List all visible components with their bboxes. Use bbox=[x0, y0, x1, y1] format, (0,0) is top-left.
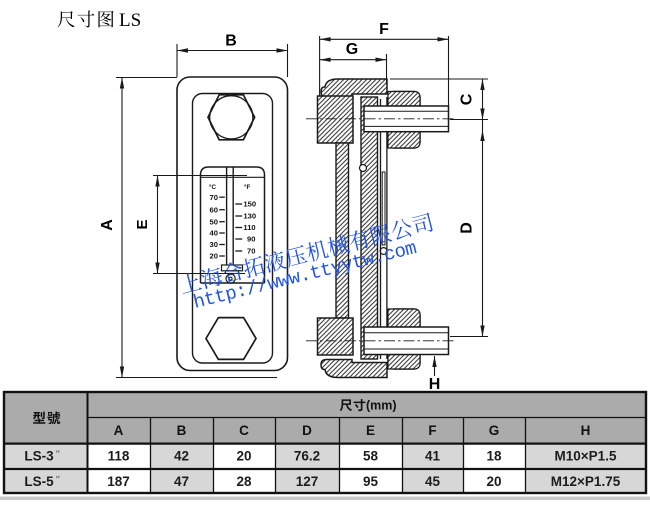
svg-text:°C: °C bbox=[209, 183, 217, 191]
svg-text:A: A bbox=[99, 219, 116, 231]
svg-text:F: F bbox=[428, 423, 436, 438]
svg-text:D: D bbox=[459, 222, 476, 234]
svg-text:42: 42 bbox=[174, 449, 189, 464]
svg-text:E: E bbox=[134, 219, 151, 229]
svg-text:150: 150 bbox=[243, 200, 256, 209]
svg-text:M10×P1.5: M10×P1.5 bbox=[555, 449, 617, 464]
svg-text:47: 47 bbox=[174, 474, 189, 489]
svg-text:G: G bbox=[346, 41, 358, 58]
svg-text:18: 18 bbox=[486, 449, 502, 464]
svg-text:A: A bbox=[114, 423, 124, 438]
svg-text:70: 70 bbox=[247, 247, 255, 256]
svg-text:(mm): (mm) bbox=[366, 399, 397, 413]
svg-text:40: 40 bbox=[210, 229, 218, 238]
svg-text:41: 41 bbox=[425, 449, 441, 464]
svg-text:B: B bbox=[225, 33, 237, 50]
svg-text:E: E bbox=[366, 423, 375, 438]
svg-text:130: 130 bbox=[243, 212, 256, 221]
svg-text:60: 60 bbox=[210, 205, 218, 214]
svg-text:127: 127 bbox=[296, 474, 319, 489]
svg-text:70: 70 bbox=[210, 193, 218, 202]
svg-text:20: 20 bbox=[210, 252, 218, 261]
svg-text:28: 28 bbox=[236, 474, 252, 489]
svg-text:G: G bbox=[489, 423, 500, 438]
svg-text:90: 90 bbox=[247, 235, 255, 244]
svg-text:20: 20 bbox=[486, 474, 501, 489]
svg-text:M12×P1.75: M12×P1.75 bbox=[551, 474, 621, 489]
svg-text:118: 118 bbox=[108, 449, 130, 464]
svg-text:C: C bbox=[459, 93, 476, 105]
svg-text:58: 58 bbox=[363, 449, 379, 464]
svg-text:20: 20 bbox=[236, 449, 251, 464]
svg-text:30: 30 bbox=[210, 240, 218, 249]
svg-text:50: 50 bbox=[210, 217, 218, 226]
svg-text:110: 110 bbox=[243, 223, 255, 232]
svg-text:H: H bbox=[581, 423, 591, 438]
svg-text:45: 45 bbox=[425, 474, 441, 489]
svg-text:C: C bbox=[239, 423, 249, 438]
svg-text:H: H bbox=[429, 376, 441, 393]
svg-text:°F: °F bbox=[244, 183, 251, 191]
svg-text:LS: LS bbox=[119, 10, 141, 31]
svg-text:95: 95 bbox=[363, 474, 379, 489]
svg-text:76.2: 76.2 bbox=[294, 449, 320, 464]
svg-text:F: F bbox=[379, 21, 389, 38]
svg-text:187: 187 bbox=[107, 474, 130, 489]
svg-text:D: D bbox=[302, 423, 312, 438]
svg-text:B: B bbox=[177, 423, 187, 438]
